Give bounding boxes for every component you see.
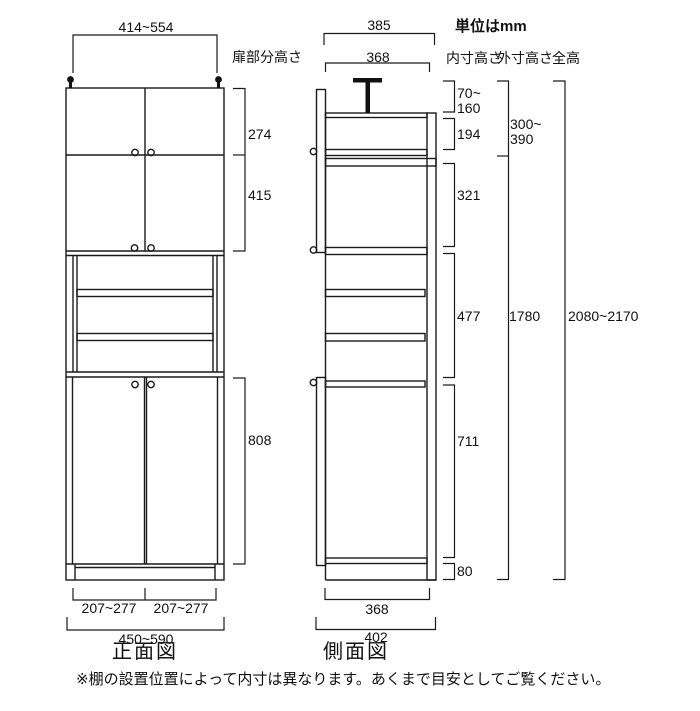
- side-view-drawing: [310, 78, 436, 580]
- diagram-page: 単位はmm 内寸高さ 外寸高さ 全高 414~554 扉部分高さ 385 368…: [0, 0, 700, 711]
- dim-front-bottom-total: [67, 617, 224, 630]
- middle-shelf-2: [77, 334, 213, 341]
- side-upper-door-front: [317, 90, 326, 253]
- dim-side-bottom-inner: [325, 588, 430, 600]
- column-header-total-height: 全高: [552, 51, 580, 66]
- dim-label-upper-door-1: 274: [248, 127, 271, 142]
- column-header-outer-height: 外寸高さ: [497, 51, 553, 66]
- dim-label-front-bottom-left: 207~277: [82, 601, 137, 616]
- tension-bolt-icon: [67, 76, 74, 88]
- dim-inner-477: [443, 254, 455, 378]
- side-back-panel: [427, 113, 436, 580]
- column-header-inner-height: 内寸高さ: [446, 51, 502, 66]
- side-shelf-321: [326, 248, 428, 255]
- ceiling-jack-icon: [353, 78, 382, 113]
- side-separator-board: [326, 159, 437, 167]
- door-knob-side: [310, 247, 316, 253]
- middle-shelf-1: [77, 290, 213, 297]
- dim-label-inner-711: 711: [457, 434, 479, 449]
- door-knob: [132, 381, 138, 387]
- dim-label-inner-70-160: 70~ 160: [457, 86, 481, 116]
- side-middle-shelf-2: [326, 334, 426, 342]
- unit-note: 単位はmm: [455, 19, 527, 34]
- dim-label-inner-80: 80: [457, 564, 473, 579]
- dim-inner-80: [443, 564, 455, 580]
- dim-label-front-bottom-right: 207~277: [154, 601, 209, 616]
- dim-label-upper-door-2: 415: [248, 188, 271, 203]
- dim-label-lower-door: 808: [248, 433, 271, 448]
- dim-label-front-top-width: 414~554: [119, 20, 174, 35]
- dim-inner-321: [443, 164, 455, 247]
- side-bottom-board: [326, 558, 428, 564]
- door-knob: [148, 381, 154, 387]
- dim-lower-door: [233, 378, 245, 564]
- tension-bolt-icon: [215, 76, 222, 88]
- dim-label-side-top-inner: 368: [366, 50, 389, 65]
- dim-inner-194: [443, 119, 455, 150]
- side-view-caption: 側面図: [323, 645, 389, 660]
- dim-inner-711: [443, 385, 455, 558]
- dim-upper-doors: [233, 89, 245, 252]
- door-knob: [131, 245, 137, 251]
- door-knob-side: [310, 148, 316, 154]
- dim-label-inner-194: 194: [457, 127, 480, 142]
- side-middle-shelf-1: [326, 290, 426, 297]
- dim-inner-70-160: [443, 81, 455, 112]
- dim-front-top-width: [73, 35, 217, 73]
- dim-label-total-height: 2080~2170: [568, 309, 638, 324]
- door-knob: [148, 245, 154, 251]
- door-section-label: 扉部分高さ: [232, 50, 302, 65]
- front-view-caption: 正面図: [112, 645, 178, 660]
- dim-label-outer-300-390: 300~ 390: [510, 117, 542, 147]
- dim-label-side-bottom-inner: 368: [365, 602, 388, 617]
- dim-total-height: [553, 81, 565, 580]
- dim-label-outer-1780: 1780: [509, 309, 540, 324]
- dim-side-top-outer: [324, 34, 435, 46]
- dim-label-side-top-outer: 385: [367, 18, 390, 33]
- side-shelf-194: [326, 150, 428, 156]
- side-lower-door-front: [317, 378, 326, 566]
- door-knob-side: [310, 379, 316, 385]
- footnote: ※棚の設置位置によって内寸は異なります。あくまで目安としてご覧ください。: [76, 672, 610, 687]
- dim-label-inner-477: 477: [457, 309, 480, 324]
- dim-label-inner-321: 321: [457, 188, 480, 203]
- front-view-drawing: [66, 76, 224, 580]
- side-lower-top-board: [326, 381, 426, 387]
- side-top-board: [326, 113, 428, 118]
- dim-side-bottom-outer: [316, 617, 436, 630]
